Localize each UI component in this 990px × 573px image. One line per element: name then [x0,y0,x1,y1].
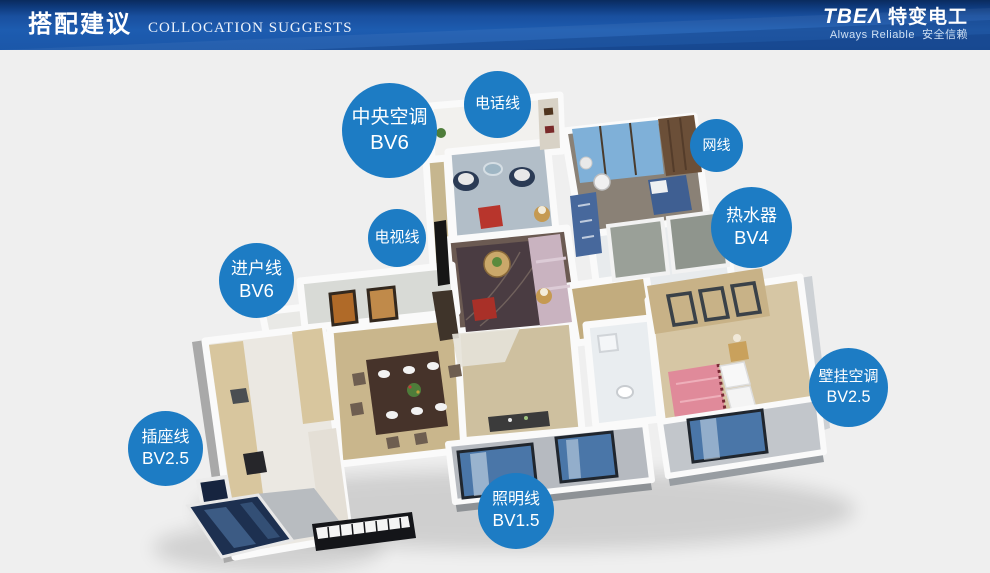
bubble-line: 中央空调 [351,106,427,130]
label-bubble-water-heater: 热水器 BV4 [711,187,792,268]
label-bubble-entry-line: 进户线 BV6 [219,243,294,318]
bubble-line: 电视线 [374,229,419,248]
brand-tagline: Always Reliable安全信赖 [823,29,968,42]
room-bathroom-center [586,318,660,427]
bubble-line: BV4 [734,227,769,250]
bubble-line: BV1.5 [492,510,539,532]
brand-logo: TBEΛ特变电工 Always Reliable安全信赖 [823,7,968,42]
label-bubble-socket-line: 插座线 BV2.5 [128,411,203,486]
label-bubble-lighting-line: 照明线 BV1.5 [478,473,554,549]
bubble-line: BV2.5 [142,448,189,470]
label-bubble-phone-line: 电话线 [464,71,531,138]
page-title-zh: 搭配建议 [28,13,132,37]
bubble-line: 进户线 [231,258,282,279]
label-bubble-wall-ac: 壁挂空调 BV2.5 [809,348,888,427]
bubble-line: 热水器 [726,205,777,226]
brand-tagline-en: Always Reliable [830,29,915,41]
canvas: 中央空调 BV6 电话线 网线 热水器 BV4 电视线 进户线 BV6 壁挂空调… [0,50,990,573]
label-bubble-tv-line: 电视线 [368,209,426,267]
bubble-line: BV6 [370,130,409,156]
brand-logo-tbea: TBEΛ [823,5,883,28]
brand-logo-zh: 特变电工 [888,7,968,28]
bubble-line: 壁挂空调 [818,368,878,387]
bubble-line: BV6 [239,280,274,303]
bubble-line: BV2.5 [826,387,870,407]
bubble-line: 插座线 [141,428,189,448]
bubble-line: 电话线 [475,95,520,114]
brand-tagline-zh: 安全信赖 [922,29,968,41]
label-bubble-central-ac: 中央空调 BV6 [342,83,437,178]
bubble-line: 照明线 [492,490,540,510]
bubble-line: 网线 [703,137,731,155]
page-title-en: COLLOCATION SUGGESTS [148,14,353,37]
page: 搭配建议 COLLOCATION SUGGESTS TBEΛ特变电工 Alway… [0,0,990,573]
label-bubble-network-cable: 网线 [690,119,743,172]
